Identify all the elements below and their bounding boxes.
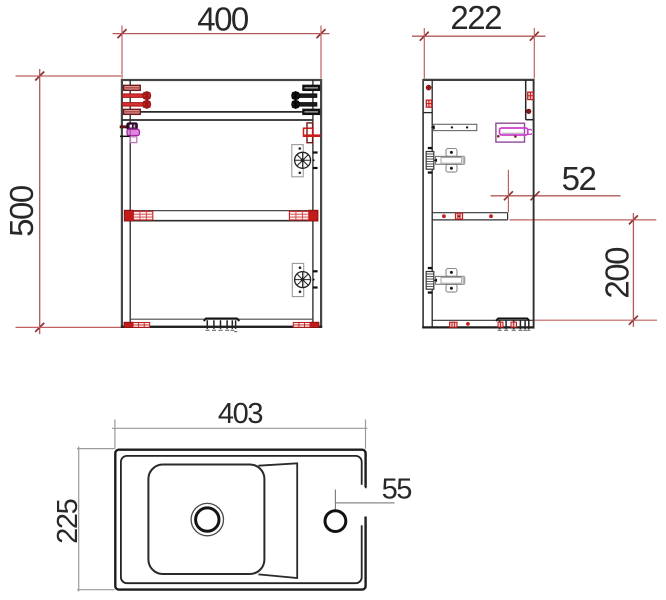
svg-text:403: 403 — [218, 398, 262, 430]
svg-text:55: 55 — [382, 473, 412, 505]
svg-text:200: 200 — [599, 247, 636, 299]
svg-text:400: 400 — [197, 1, 249, 38]
svg-text:222: 222 — [450, 0, 501, 36]
svg-text:52: 52 — [562, 160, 596, 197]
svg-text:500: 500 — [3, 185, 40, 237]
svg-text:225: 225 — [52, 499, 84, 543]
